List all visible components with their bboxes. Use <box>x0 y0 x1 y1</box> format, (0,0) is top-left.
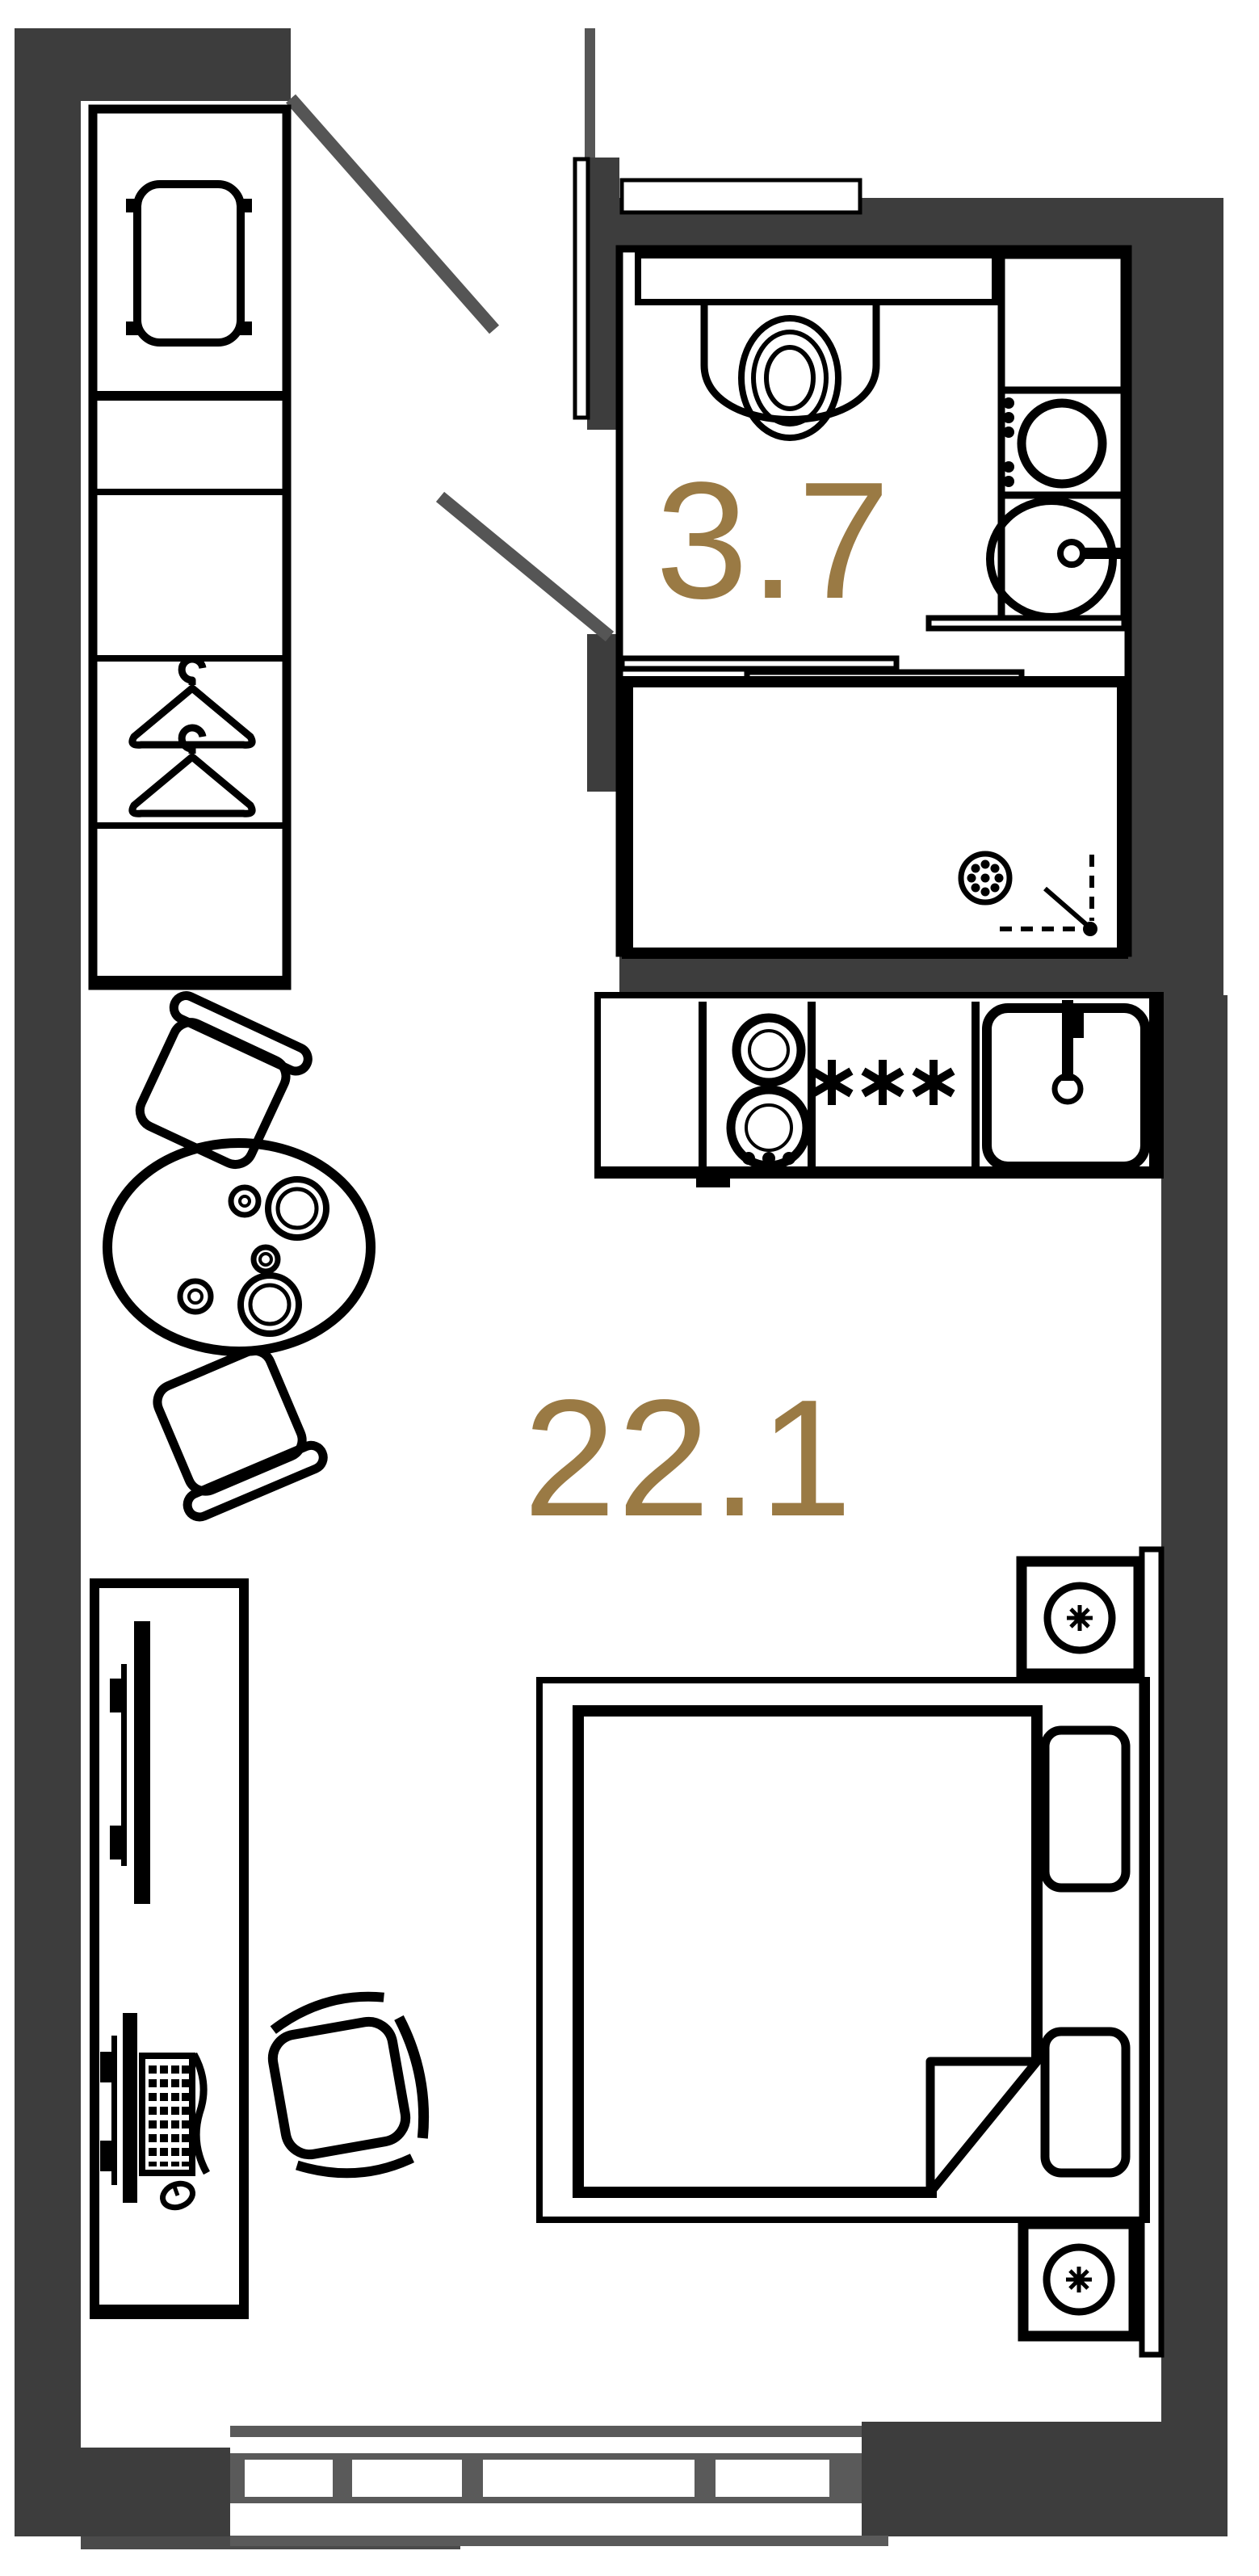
round-dining-table-icon <box>107 1143 371 1351</box>
blanket-fold-icon <box>930 2061 1037 2192</box>
kitchen-sink-icon <box>987 1000 1145 1166</box>
bed-area <box>539 1549 1161 2355</box>
kitchen <box>598 995 1160 1187</box>
wall-stub-below-bath-door <box>587 634 619 792</box>
pillow-icon <box>1045 2032 1126 2173</box>
duct-strip <box>575 159 588 418</box>
clothes-hanger-icon <box>132 659 252 745</box>
workstation <box>90 1583 434 2318</box>
shower-head-marker-icon <box>1000 855 1097 936</box>
wall-right-lower <box>1161 995 1228 2425</box>
shower-tray-icon <box>627 682 1123 953</box>
bathroom-door-swing-icon <box>440 497 610 637</box>
bathroom-cabinet-icon <box>1001 255 1124 390</box>
wall-under-bathroom <box>619 953 1223 995</box>
dining-chair-icon <box>141 1341 327 1521</box>
washing-machine-icon <box>1001 390 1124 495</box>
wall-bottom-right <box>862 2422 1228 2536</box>
kitchen-asterisk-marks-icon <box>812 1060 953 1105</box>
section-cut-line <box>585 28 595 158</box>
double-bed-icon <box>539 1680 1147 2220</box>
tableware-icons <box>180 1179 326 1334</box>
wall-left <box>15 28 81 2536</box>
wall-stub-above-bath-door <box>587 158 619 430</box>
living-room-area-label: 22.1 <box>523 1375 830 1541</box>
floor-plan: 3.7 22.1 <box>0 0 1259 2576</box>
vanity-counter-icon <box>638 255 995 302</box>
office-chair-icon <box>264 1988 434 2185</box>
entry-door-swing-icon <box>291 99 494 330</box>
kitchen-faucet-icon <box>1055 1000 1084 1102</box>
blanket-outline <box>578 1711 1037 2192</box>
wall-opening-strip <box>622 180 860 212</box>
wall-right-bathroom <box>1128 198 1223 995</box>
window-bottom-icon <box>230 2426 888 2546</box>
clothes-hanger-icon <box>132 728 252 813</box>
wall-tv-icon <box>110 1621 150 1904</box>
toilet-icon <box>704 300 876 438</box>
floor-drain-icon <box>961 854 1009 902</box>
nightstand-with-lamp-icon <box>1022 1561 1139 1674</box>
mouse-icon <box>159 2179 195 2211</box>
wardrobe <box>89 109 291 987</box>
bathroom-area-label: 3.7 <box>653 457 895 624</box>
two-burner-hob-icon <box>731 1018 807 1166</box>
bathroom-sink-icon <box>990 495 1124 626</box>
wardrobe-outline <box>93 109 287 985</box>
pillow-icon <box>1045 1730 1126 1888</box>
keyboard-icon <box>142 2054 207 2173</box>
nightstand-with-lamp-icon <box>1023 2224 1134 2336</box>
floor-plan-drawing <box>0 0 1259 2576</box>
monitor-icon <box>100 2013 137 2203</box>
dining-set <box>107 992 371 1521</box>
wall-bottom-left-block <box>81 2448 230 2536</box>
storage-tray-icon <box>126 184 252 342</box>
